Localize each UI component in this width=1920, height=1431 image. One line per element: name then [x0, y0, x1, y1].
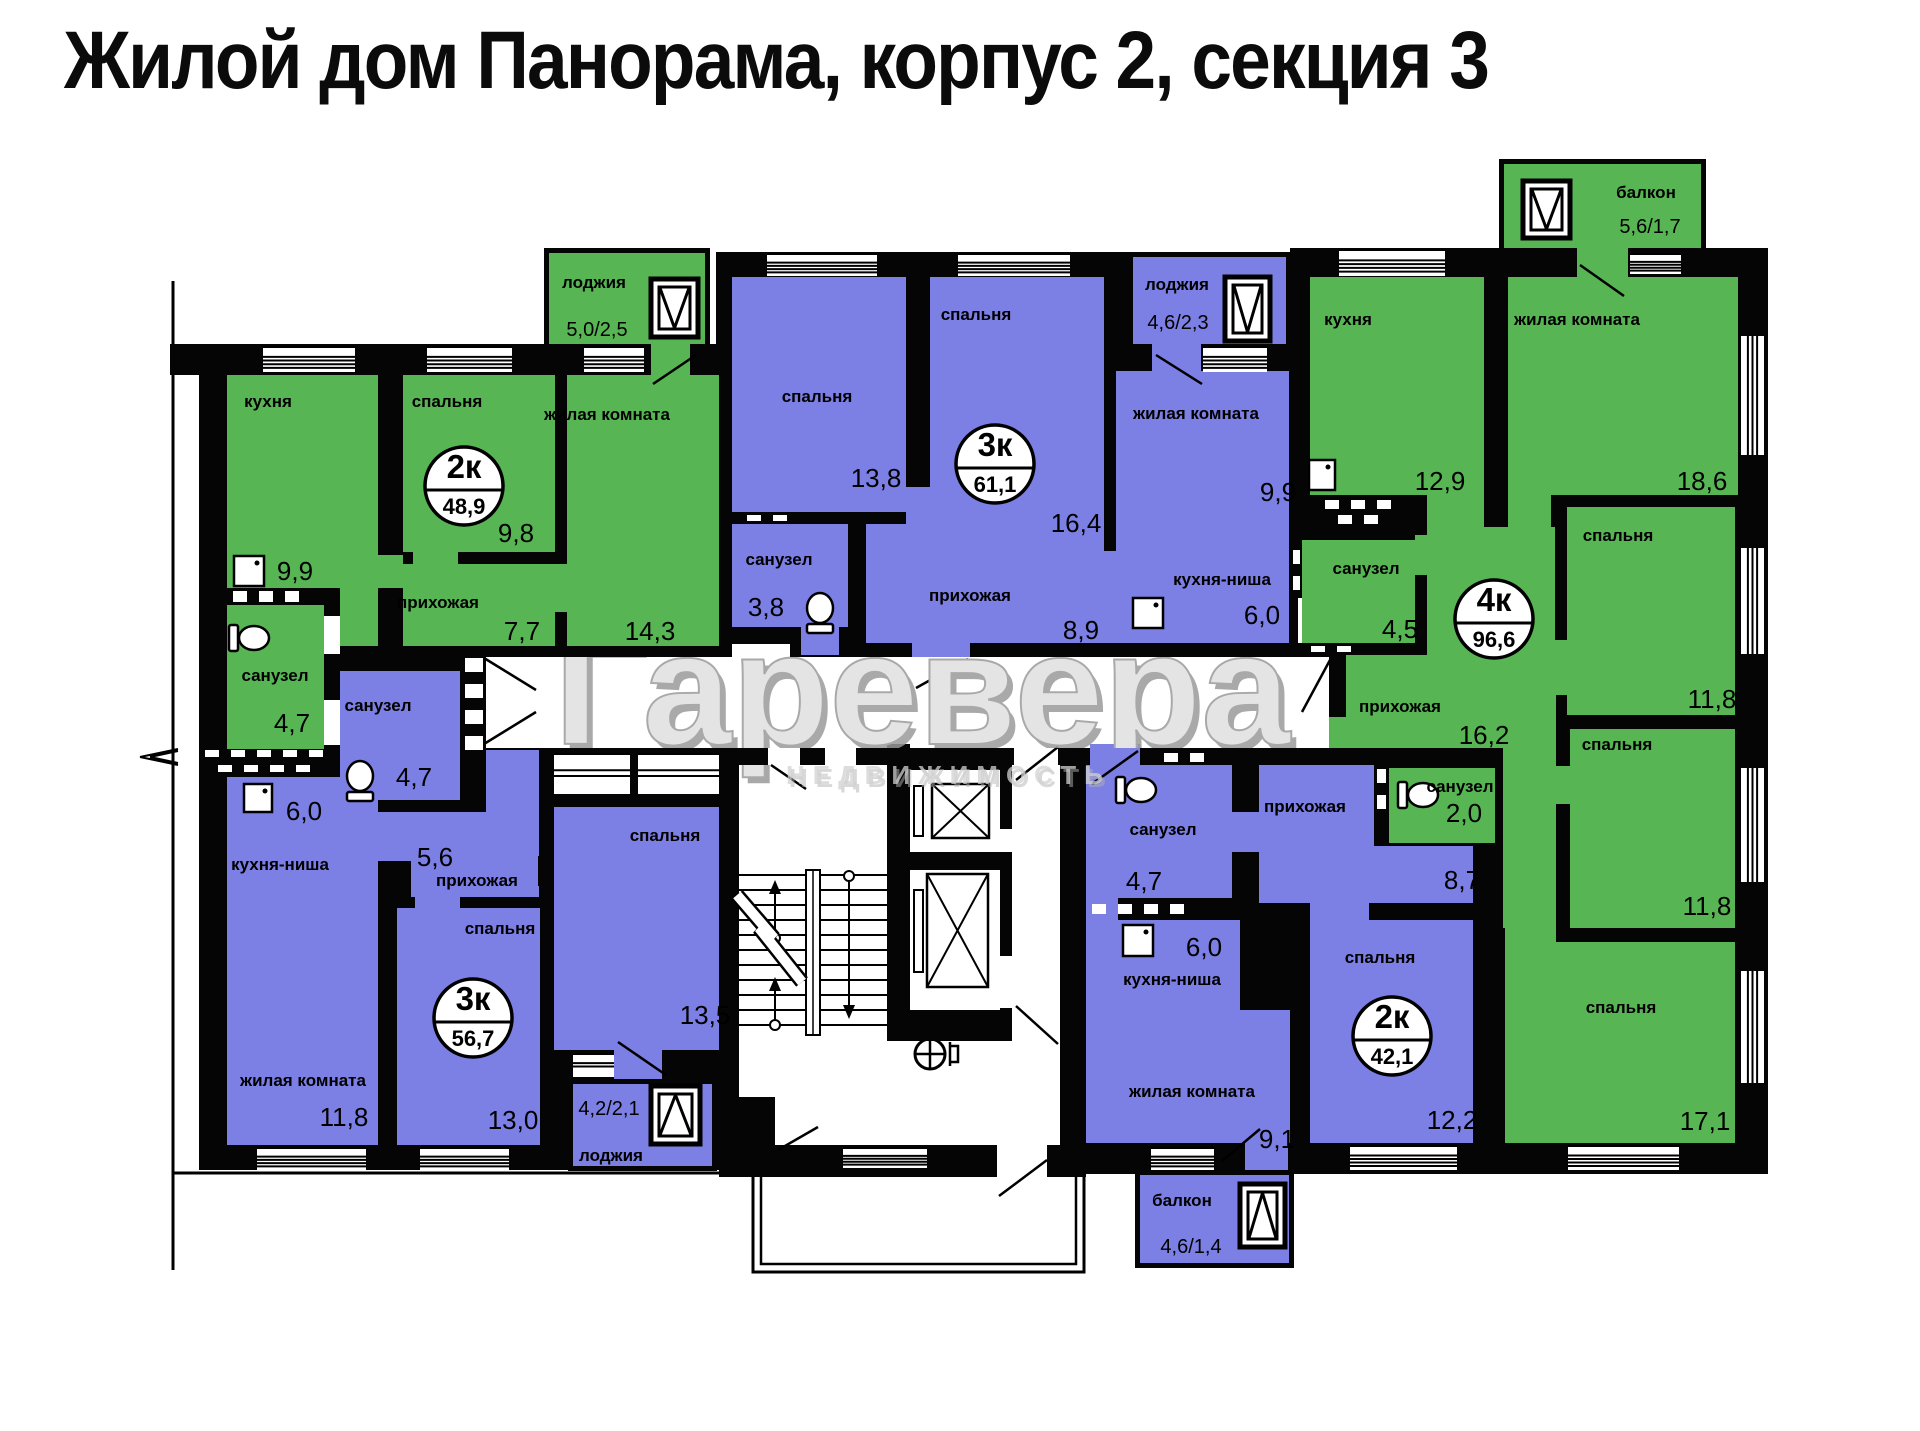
svg-text:14,3: 14,3 — [625, 616, 676, 646]
svg-text:5,6: 5,6 — [417, 842, 453, 872]
svg-text:9,8: 9,8 — [498, 518, 534, 548]
svg-text:кухня-ниша: кухня-ниша — [1123, 970, 1221, 989]
svg-text:3к: 3к — [978, 426, 1013, 463]
svg-text:НЕДВИЖИМОСТЬ: НЕДВИЖИМОСТЬ — [786, 760, 1111, 790]
svg-text:11,8: 11,8 — [320, 1102, 369, 1132]
svg-text:спальня: спальня — [630, 826, 701, 845]
svg-text:4,6/2,3: 4,6/2,3 — [1147, 312, 1208, 334]
svg-text:3,8: 3,8 — [748, 592, 784, 622]
svg-text:Жилой дом Панорама, корпус 2,: Жилой дом Панорама, корпус 2, секция 3 — [63, 15, 1488, 106]
svg-text:5,6/1,7: 5,6/1,7 — [1619, 216, 1680, 238]
svg-text:16,4: 16,4 — [1051, 508, 1102, 538]
svg-text:прихожая: прихожая — [929, 586, 1011, 605]
svg-text:48,9: 48,9 — [443, 494, 486, 519]
svg-text:спальня: спальня — [1583, 526, 1654, 545]
svg-text:4,2/2,1: 4,2/2,1 — [578, 1098, 639, 1120]
svg-text:санузел: санузел — [344, 696, 411, 715]
svg-text:6,0: 6,0 — [1186, 932, 1222, 962]
svg-text:спальня: спальня — [1582, 735, 1653, 754]
svg-text:лоджия: лоджия — [562, 273, 626, 292]
svg-text:4,7: 4,7 — [274, 708, 310, 738]
svg-text:42,1: 42,1 — [1371, 1044, 1414, 1069]
svg-text:8,7: 8,7 — [1444, 865, 1480, 895]
svg-text:жилая комната: жилая комната — [1128, 1082, 1255, 1101]
svg-text:2к: 2к — [1375, 998, 1410, 1035]
svg-text:11,8: 11,8 — [1688, 684, 1737, 714]
svg-text:6,0: 6,0 — [286, 796, 322, 826]
svg-text:кухня: кухня — [1324, 310, 1372, 329]
svg-text:16,2: 16,2 — [1459, 720, 1510, 750]
svg-text:спальня: спальня — [1586, 998, 1657, 1017]
svg-text:спальня: спальня — [1345, 948, 1416, 967]
svg-text:кухня-ниша: кухня-ниша — [231, 855, 329, 874]
svg-text:лоджия: лоджия — [1145, 275, 1209, 294]
svg-text:5,0/2,5: 5,0/2,5 — [566, 319, 627, 341]
svg-text:балкон: балкон — [1616, 183, 1676, 202]
svg-text:жилая комната: жилая комната — [239, 1071, 366, 1090]
svg-text:лоджия: лоджия — [579, 1146, 643, 1165]
svg-text:3к: 3к — [456, 980, 491, 1017]
svg-text:17,1: 17,1 — [1680, 1106, 1731, 1136]
svg-text:жилая комната: жилая комната — [1513, 310, 1640, 329]
svg-text:9,1: 9,1 — [1259, 1124, 1295, 1154]
svg-text:4,6/1,4: 4,6/1,4 — [1160, 1236, 1221, 1258]
svg-text:спальня: спальня — [941, 305, 1012, 324]
svg-text:4,5: 4,5 — [1382, 614, 1418, 644]
svg-text:13,0: 13,0 — [488, 1105, 539, 1135]
svg-text:санузел: санузел — [1332, 559, 1399, 578]
svg-text:11,8: 11,8 — [1683, 891, 1732, 921]
svg-text:санузел: санузел — [1426, 777, 1493, 796]
svg-text:6,0: 6,0 — [1244, 600, 1280, 630]
svg-text:18,6: 18,6 — [1677, 466, 1728, 496]
svg-text:2к: 2к — [447, 448, 482, 485]
svg-text:9,9: 9,9 — [277, 556, 313, 586]
svg-text:4,7: 4,7 — [396, 762, 432, 792]
svg-text:спальня: спальня — [412, 392, 483, 411]
svg-text:12,9: 12,9 — [1415, 466, 1466, 496]
svg-text:прихожая: прихожая — [436, 871, 518, 890]
svg-text:балкон: балкон — [1152, 1191, 1212, 1210]
svg-text:жилая комната: жилая комната — [1132, 404, 1259, 423]
svg-text:кухня-ниша: кухня-ниша — [1173, 570, 1271, 589]
svg-text:7,7: 7,7 — [504, 616, 540, 646]
svg-text:56,7: 56,7 — [452, 1026, 495, 1051]
svg-text:жилая комната: жилая комната — [543, 405, 670, 424]
svg-text:13,5: 13,5 — [680, 1000, 731, 1030]
svg-text:спальня: спальня — [782, 387, 853, 406]
svg-text:кухня: кухня — [244, 392, 292, 411]
svg-text:96,6: 96,6 — [1473, 627, 1516, 652]
svg-text:9,9: 9,9 — [1260, 477, 1296, 507]
svg-text:13,8: 13,8 — [851, 463, 902, 493]
svg-text:4,7: 4,7 — [1126, 866, 1162, 896]
svg-text:спальня: спальня — [465, 919, 536, 938]
svg-text:санузел: санузел — [241, 666, 308, 685]
svg-text:12,2: 12,2 — [1427, 1105, 1478, 1135]
svg-text:4к: 4к — [1477, 581, 1512, 618]
svg-text:прихожая: прихожая — [1359, 697, 1441, 716]
svg-text:2,0: 2,0 — [1446, 798, 1482, 828]
svg-text:61,1: 61,1 — [974, 472, 1017, 497]
svg-text:санузел: санузел — [745, 550, 812, 569]
svg-text:прихожая: прихожая — [1264, 797, 1346, 816]
svg-text:8,9: 8,9 — [1063, 615, 1099, 645]
svg-text:санузел: санузел — [1129, 820, 1196, 839]
svg-text:прихожая: прихожая — [397, 593, 479, 612]
